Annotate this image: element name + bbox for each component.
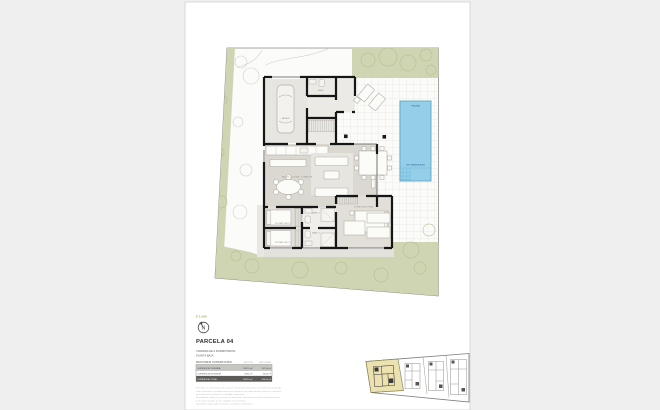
row-const: 36,45 m² <box>263 373 272 376</box>
label-bedroom2: DORMITORIO 2 <box>275 242 291 244</box>
column <box>344 135 348 139</box>
table-title: RESUMEN SUPERFICIES <box>196 360 232 364</box>
garden-north <box>352 48 439 78</box>
row-label: SUPERFICIE EXTERIOR <box>198 374 222 376</box>
pool: PISCINA SUP. LÁMINA DE AGUA <box>400 101 431 181</box>
label-bath2: BAÑO 2 <box>312 232 320 235</box>
table-col-const: SUP. CONST. <box>259 362 272 364</box>
entry-floor <box>336 79 355 112</box>
row-util: 168,55 m² <box>243 378 253 381</box>
row-const: 203,45 m² <box>262 378 272 381</box>
wardrobe <box>295 209 302 227</box>
keyplan-plot-highlighted <box>366 359 404 393</box>
disclaimer-line: El mobiliario, jardinería y piscina son … <box>196 396 280 399</box>
aseo-toilet <box>319 80 325 87</box>
row-const: 167,00 m² <box>262 367 272 370</box>
row-util: 138,70 m² <box>243 367 253 370</box>
kitchen-island <box>270 160 306 167</box>
label-aseo: ASEO <box>318 89 324 92</box>
label-garage: GARAJE <box>281 117 290 120</box>
parcela-title: PARCELA 04 <box>196 339 234 345</box>
hall-floor <box>307 79 336 144</box>
disclaimer-line: Superficies expresadas en metros cuadrad… <box>196 403 253 406</box>
label-living: SALÓN · COCINA · COMEDOR <box>282 176 313 179</box>
nightstand <box>350 211 354 215</box>
disclaimer-line: de la dirección facultativa o autoridad … <box>196 393 245 396</box>
wardrobe <box>295 230 302 247</box>
wardrobe-hall <box>308 121 335 132</box>
plan-sheet: GARAJE ASEO SALÓN · COCINA · COMEDOR DOR… <box>0 0 660 410</box>
subtitle-line1: VIVIENDA DE 3 DORMITORIOS. <box>196 349 236 353</box>
scale-label: E 1:100 <box>196 315 207 319</box>
row-label: SUPERFICIE TOTAL <box>198 378 218 381</box>
house: GARAJE ASEO SALÓN · COCINA · COMEDOR DOR… <box>264 77 392 248</box>
table-row: SUPERFICIE VIVIENDA 138,70 m² 167,00 m² <box>196 365 272 371</box>
table-col-util: SUP. ÚTIL <box>244 361 254 364</box>
table-row: SUPERFICIE TOTAL 168,55 m² 203,45 m² <box>196 376 272 382</box>
disclaimer-line: sufrir variaciones y modificaciones por … <box>196 390 281 393</box>
wardrobe-master <box>338 198 358 205</box>
sofa <box>315 157 348 166</box>
coffee-table <box>324 171 339 179</box>
label-bedroom1: DORMITORIO 1 <box>275 223 291 225</box>
row-util: 29,85 m² <box>244 373 253 376</box>
label-master: DORMITORIO PPAL. <box>354 206 375 209</box>
column <box>383 135 387 139</box>
north-letter: N <box>202 326 206 332</box>
outdoor-dining <box>355 147 392 180</box>
subtitle-line2: PLANTA BAJA <box>196 353 214 357</box>
pool-label: PISCINA <box>411 105 420 108</box>
disclaimer-line: y no están incluidos en las calidades de… <box>196 399 246 402</box>
aseo-sink <box>309 80 316 85</box>
sheet-viewer: GARAJE ASEO SALÓN · COCINA · COMEDOR DOR… <box>0 0 660 410</box>
disclaimer-line: Este plano es orientativo y de carácter … <box>196 387 282 390</box>
walkway-south <box>257 249 394 257</box>
label-bath1: BAÑO 1 <box>312 212 320 215</box>
row-label: SUPERFICIE VIVIENDA <box>198 367 221 370</box>
pool-sublabel: SUP. LÁMINA DE AGUA <box>406 164 425 167</box>
site-plan: GARAJE ASEO SALÓN · COCINA · COMEDOR DOR… <box>212 48 438 296</box>
car <box>276 85 295 133</box>
